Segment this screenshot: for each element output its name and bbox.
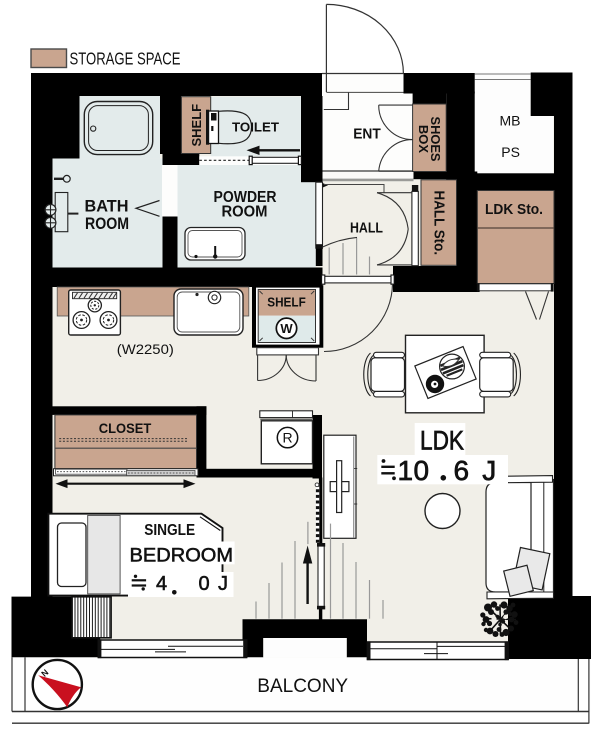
svg-text:ROOM: ROOM xyxy=(222,204,268,221)
svg-text:CLOSET: CLOSET xyxy=(99,420,152,436)
svg-text:ENT: ENT xyxy=(353,125,381,142)
svg-text:W: W xyxy=(280,321,293,336)
svg-text:R: R xyxy=(282,430,292,446)
svg-text:0: 0 xyxy=(198,573,209,595)
svg-text:PS: PS xyxy=(501,144,520,160)
svg-text:MB: MB xyxy=(500,113,521,129)
svg-text:6: 6 xyxy=(454,455,470,486)
svg-text:BOX: BOX xyxy=(416,125,431,154)
svg-text:J: J xyxy=(482,455,496,486)
svg-text:BEDROOM: BEDROOM xyxy=(130,544,234,566)
svg-text:4: 4 xyxy=(156,573,167,595)
svg-text:0: 0 xyxy=(414,455,430,486)
svg-text:HALL: HALL xyxy=(350,221,383,237)
svg-text:BATH: BATH xyxy=(85,198,129,216)
svg-text:HALL Sto.: HALL Sto. xyxy=(431,191,447,256)
svg-text:TOILET: TOILET xyxy=(232,119,279,134)
svg-text:SHELF: SHELF xyxy=(189,104,204,147)
svg-text:1: 1 xyxy=(398,455,414,486)
svg-text:LDK: LDK xyxy=(420,426,464,456)
svg-text:LDK Sto.: LDK Sto. xyxy=(485,201,543,218)
svg-text:STORAGE SPACE: STORAGE SPACE xyxy=(70,49,181,69)
svg-text:SHELF: SHELF xyxy=(267,295,306,310)
svg-text:BALCONY: BALCONY xyxy=(257,676,348,697)
svg-text:SINGLE: SINGLE xyxy=(144,522,195,539)
svg-text:(W2250): (W2250) xyxy=(117,342,174,357)
svg-text:J: J xyxy=(218,573,228,595)
svg-text:ROOM: ROOM xyxy=(85,215,129,233)
